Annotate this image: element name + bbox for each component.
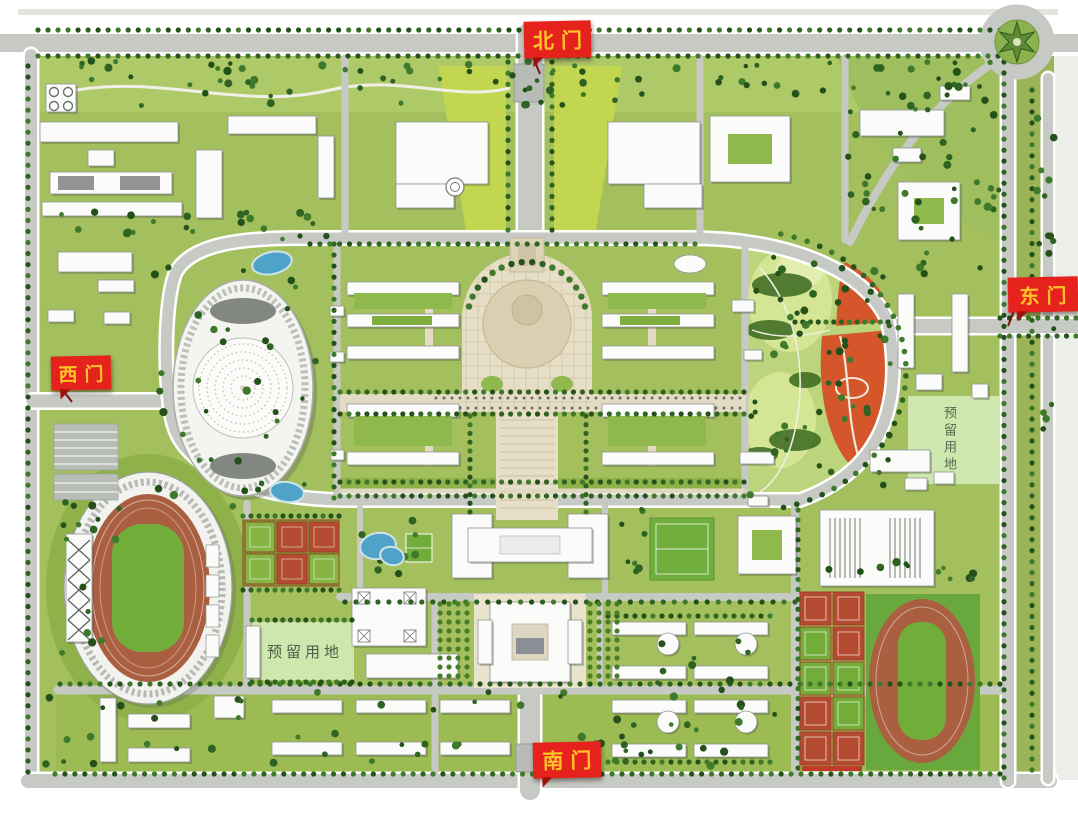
building	[952, 294, 968, 372]
building	[612, 666, 686, 679]
campus-map-svg	[0, 0, 1078, 815]
building	[612, 700, 686, 713]
west-gate-banner: 西门	[51, 355, 112, 390]
east-gate-label: 东门	[1019, 279, 1074, 309]
building	[228, 116, 316, 134]
building	[694, 700, 768, 713]
building	[916, 374, 942, 390]
building	[440, 742, 510, 755]
north-gate-building	[514, 64, 544, 102]
building	[356, 700, 426, 713]
building	[898, 294, 914, 368]
building	[88, 150, 114, 166]
reserved-land-label-southwest: 预留用地	[256, 641, 354, 662]
building	[128, 714, 190, 728]
building	[347, 346, 459, 359]
building	[196, 150, 222, 218]
building	[905, 478, 927, 490]
campus-master-plan: 北门 东门 西门 南门 预留用地 预留用地	[0, 0, 1078, 815]
building	[128, 748, 190, 762]
south-gate-banner: 南门	[533, 741, 602, 778]
building	[602, 452, 714, 465]
building	[744, 350, 762, 360]
courtyard-garden	[752, 530, 782, 560]
building	[347, 452, 459, 465]
building	[48, 310, 74, 322]
building	[972, 384, 988, 398]
building	[820, 510, 934, 586]
building	[478, 620, 492, 664]
building	[608, 122, 700, 184]
south-gate-label: 南门	[542, 744, 599, 775]
east-gate-banner: 东门	[1008, 276, 1078, 312]
building	[396, 184, 454, 208]
parking-lot	[54, 474, 118, 500]
building	[272, 742, 342, 755]
courtyard-garden	[728, 134, 772, 164]
building	[694, 622, 768, 635]
building	[644, 184, 702, 208]
building	[732, 300, 754, 312]
north-gate-label: 北门	[533, 24, 590, 55]
courtyard-garden	[608, 416, 706, 446]
building	[602, 346, 714, 359]
building	[58, 252, 132, 272]
building	[568, 620, 582, 664]
building	[870, 450, 930, 472]
building	[366, 654, 458, 678]
courtyard-garden	[354, 293, 452, 309]
building	[396, 122, 488, 184]
reserved-land-label-east: 预留用地	[939, 406, 958, 478]
building	[612, 622, 686, 635]
building	[98, 280, 134, 292]
courtyard-garden	[608, 293, 706, 309]
building	[104, 312, 130, 324]
north-gate-banner: 北门	[524, 20, 592, 58]
building	[318, 136, 334, 198]
courtyard-garden	[354, 416, 452, 446]
parking-lot	[54, 424, 118, 470]
building	[740, 452, 774, 464]
building	[40, 122, 178, 142]
building	[272, 700, 342, 713]
west-gate-label: 西门	[58, 359, 111, 387]
